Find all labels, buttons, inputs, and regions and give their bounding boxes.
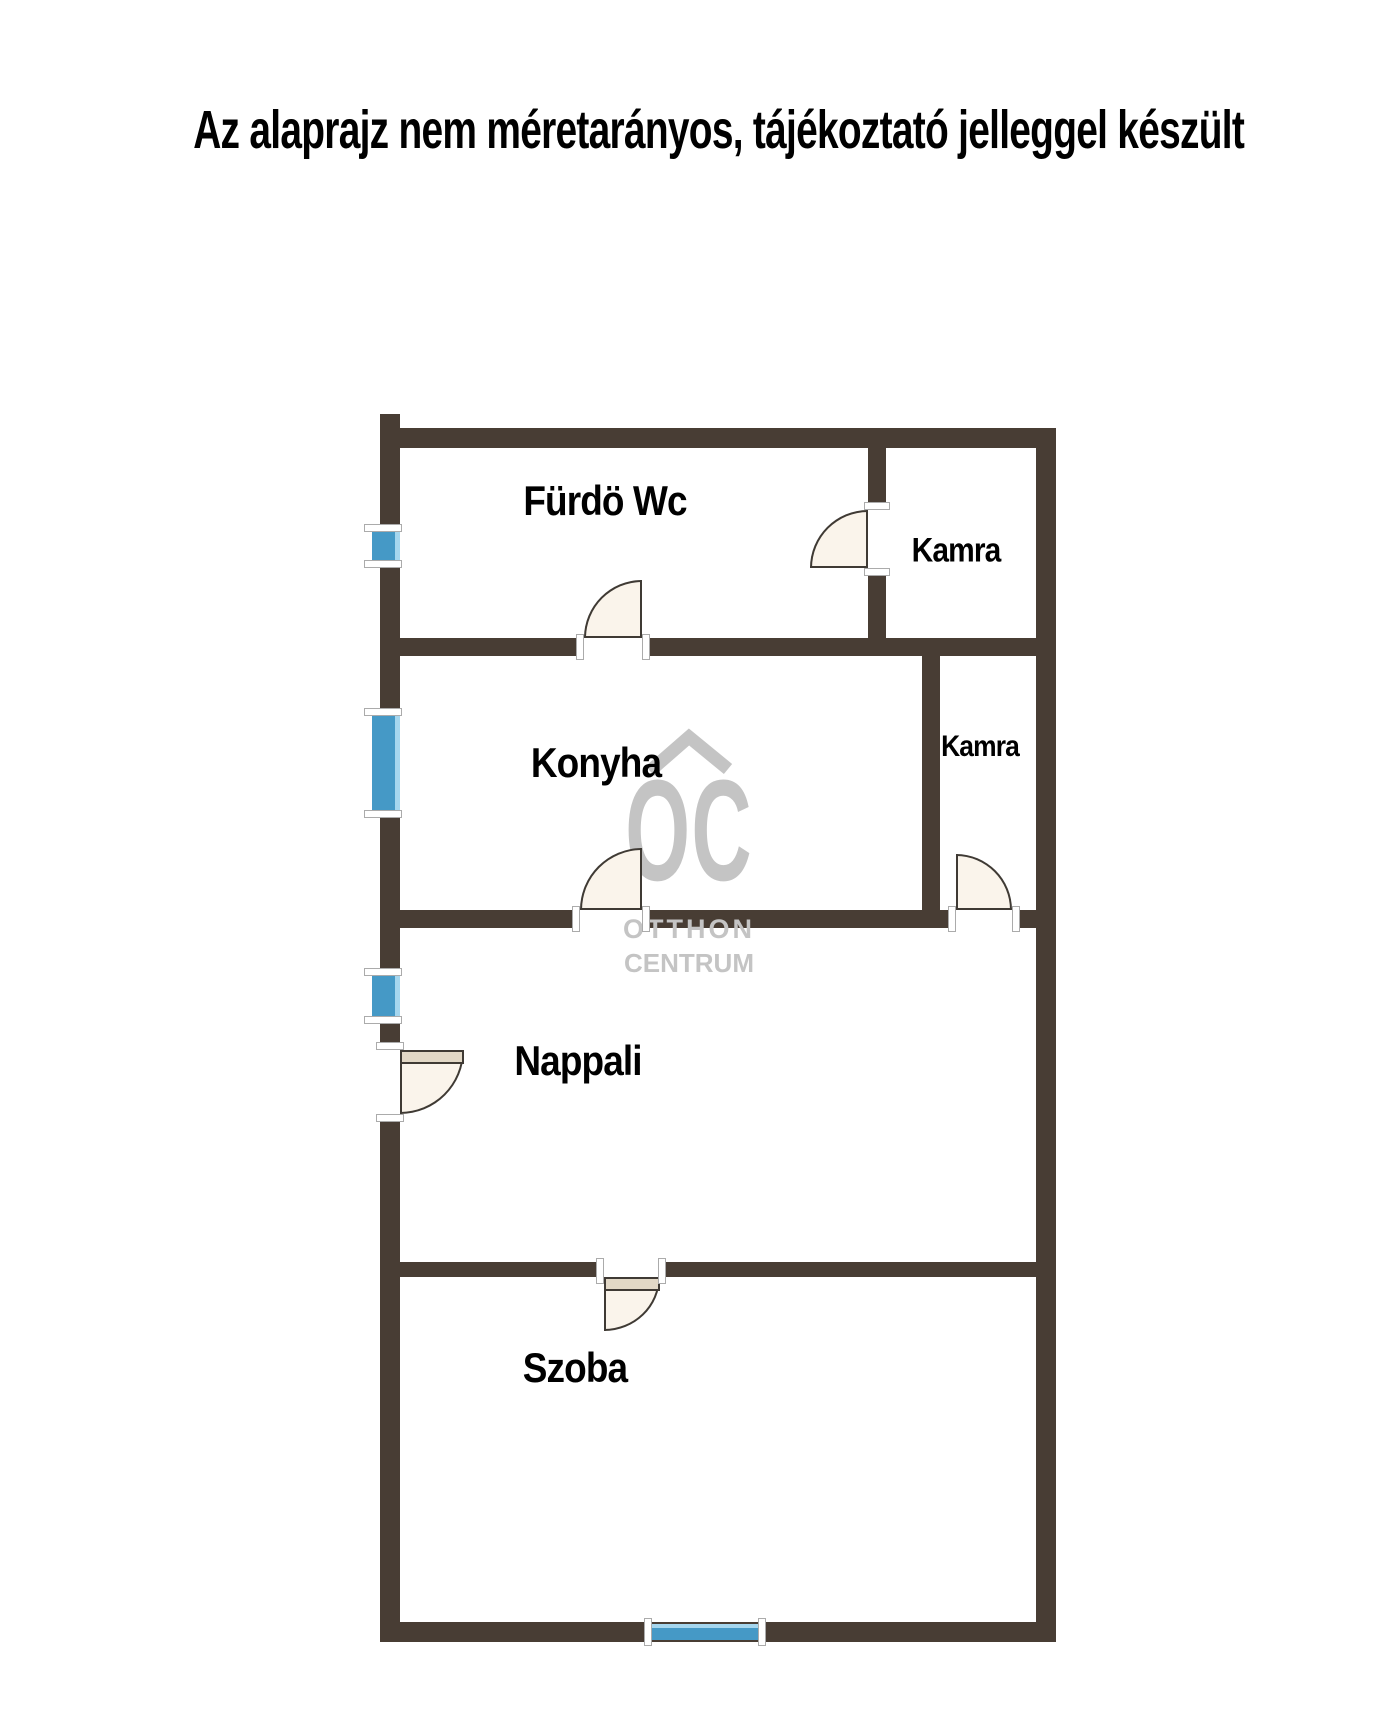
window-furdo: [372, 532, 400, 560]
wall-konyha-kamra: [922, 656, 940, 910]
room-label-szoba: Szoba: [523, 1344, 627, 1392]
wall-outer-top: [380, 428, 1056, 448]
door-opening-kamra-top: [868, 510, 886, 568]
watermark-line-centrum: CENTRUM: [624, 950, 754, 976]
door-opening-furdo: [584, 638, 642, 656]
door-leaf: [400, 1050, 464, 1064]
door-jamb: [596, 1258, 604, 1284]
room-label-kamra-top: Kamra: [912, 532, 1001, 571]
page-title: Az alaprajz nem méretarányos, tájékoztat…: [193, 101, 1187, 161]
window-konyha: [372, 716, 400, 810]
window-cap: [364, 524, 402, 532]
door-arc-furdo: [584, 580, 642, 638]
door-jamb: [864, 568, 890, 576]
wall-nappali-szoba: [400, 1262, 1036, 1277]
door-arc-kamra-small: [956, 854, 1012, 910]
window-cap: [364, 1016, 402, 1024]
room-label-furdo-wc: Fürdö Wc: [523, 477, 686, 525]
door-opening-nappali: [380, 1050, 400, 1114]
door-jamb: [376, 1114, 404, 1122]
window-cap: [644, 1618, 652, 1646]
door-jamb: [1012, 906, 1020, 932]
wall-outer-left-nub: [380, 414, 400, 428]
door-jamb: [572, 906, 580, 932]
window-cap: [758, 1618, 766, 1646]
window-cap: [364, 560, 402, 568]
door-jamb: [864, 502, 890, 510]
door-jamb: [658, 1258, 666, 1284]
door-arc-nappali: [400, 1050, 464, 1114]
door-leaf: [604, 1277, 660, 1291]
window-szoba: [652, 1624, 758, 1640]
door-jamb: [576, 634, 584, 660]
room-label-nappali: Nappali: [514, 1037, 641, 1085]
window-cap: [364, 968, 402, 976]
door-arc-kamra-top: [810, 510, 868, 568]
door-jamb: [376, 1042, 404, 1050]
window-cap: [364, 810, 402, 818]
window-cap: [364, 708, 402, 716]
door-arc-szoba: [604, 1277, 660, 1331]
door-opening-kamra-small: [956, 910, 1012, 928]
door-jamb: [948, 906, 956, 932]
wall-outer-left: [380, 428, 400, 1642]
room-label-konyha: Konyha: [531, 739, 661, 787]
door-arc-konyha: [580, 848, 642, 910]
door-jamb: [642, 906, 650, 932]
door-opening-szoba: [604, 1262, 658, 1277]
window-nappali: [372, 976, 400, 1016]
room-label-kamra-small: Kamra: [941, 730, 1019, 764]
wall-furdo-bottom: [400, 638, 1036, 656]
wall-outer-right: [1036, 428, 1056, 1642]
door-jamb: [642, 634, 650, 660]
